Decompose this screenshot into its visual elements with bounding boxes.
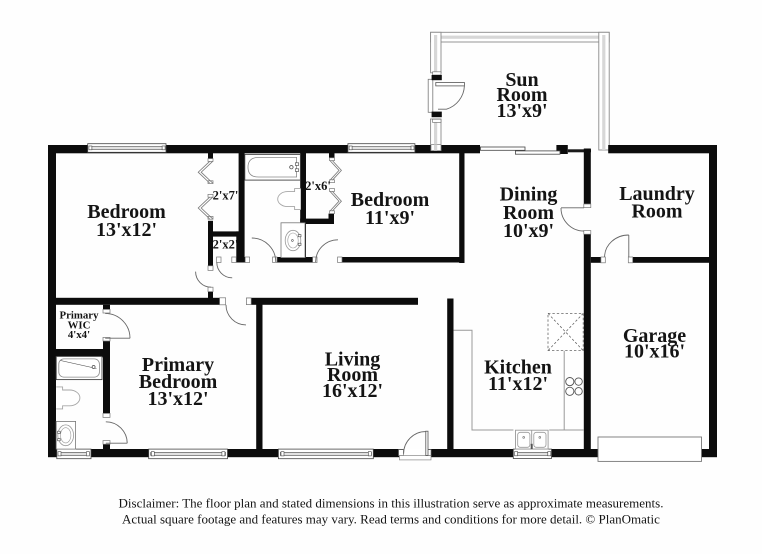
svg-text:16'x12': 16'x12'	[322, 380, 383, 402]
svg-text:11'x9': 11'x9'	[365, 207, 415, 229]
svg-text:Room: Room	[631, 201, 682, 223]
svg-text:10'x9': 10'x9'	[503, 220, 554, 242]
svg-text:4'x4': 4'x4'	[68, 329, 90, 341]
svg-text:2'x7': 2'x7'	[213, 189, 239, 203]
svg-text:11'x12': 11'x12'	[488, 373, 548, 395]
svg-text:13'x9': 13'x9'	[496, 100, 547, 122]
svg-text:13'x12': 13'x12'	[96, 219, 157, 241]
svg-text:2'x6': 2'x6'	[305, 179, 331, 193]
svg-text:2'x2': 2'x2'	[213, 238, 239, 252]
svg-text:13'x12': 13'x12'	[147, 388, 208, 410]
svg-text:10'x16': 10'x16'	[624, 341, 685, 363]
svg-text:Disclaimer: The floor plan and: Disclaimer: The floor plan and stated di…	[119, 496, 664, 511]
svg-text:Actual square footage and feat: Actual square footage and features may v…	[122, 512, 660, 527]
